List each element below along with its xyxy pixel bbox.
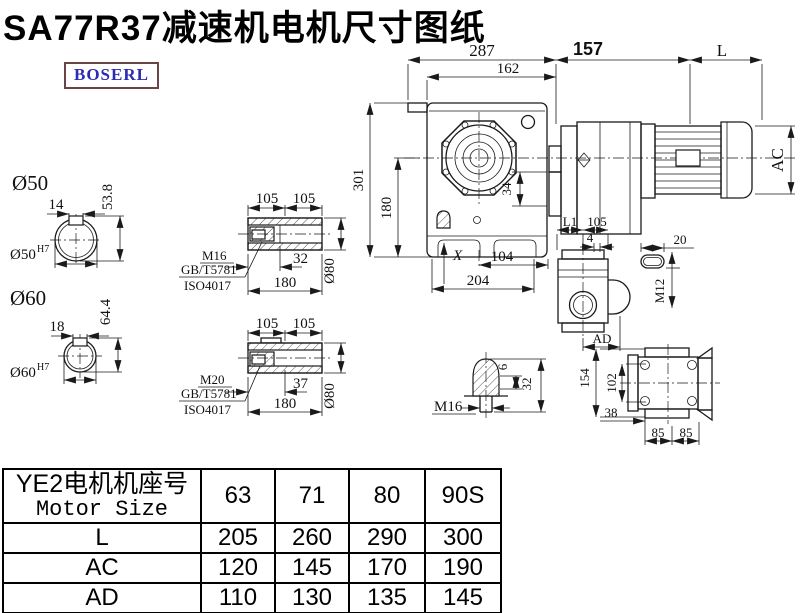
- dim-105a: 105: [256, 316, 279, 332]
- dim-14: 14: [49, 197, 65, 213]
- thread-label: M16: [202, 248, 227, 263]
- dim-157: 157: [573, 39, 603, 59]
- left-dimensions: 301 180: [351, 103, 432, 257]
- keyway-50: [69, 216, 83, 225]
- thread-label: M20: [200, 372, 225, 387]
- dim-X: X: [452, 248, 463, 264]
- dim-4: 4: [587, 230, 594, 245]
- cell: 205: [201, 523, 275, 553]
- motor-size-table: YE2电机机座号 Motor Size 63 71 80 90S L 205 2…: [2, 468, 502, 613]
- fan-cover: [721, 122, 752, 198]
- dim-32: 32: [293, 251, 308, 267]
- dim-6: 6: [495, 363, 510, 370]
- row-label-L: L: [3, 523, 201, 553]
- dim-105b: 105: [293, 316, 316, 332]
- cell: 190: [425, 553, 501, 583]
- bore-50-tolerance: H7: [37, 244, 49, 255]
- dim-38: 38: [605, 405, 618, 420]
- dim-L: L: [717, 41, 727, 60]
- thread-label: M16: [434, 399, 463, 415]
- col-63: 63: [201, 469, 275, 523]
- keyway-60: [73, 338, 87, 346]
- cell: 290: [349, 523, 425, 553]
- table-row: AC 120 145 170 190: [3, 553, 501, 583]
- bore-60-tolerance: H7: [37, 362, 49, 373]
- dim-180: 180: [274, 396, 297, 412]
- shaft-section-60: Ø60 18 64.4 Ø60 H7: [10, 286, 122, 384]
- dim-34: 34: [499, 182, 514, 196]
- standard-label-2: ISO4017: [184, 278, 231, 293]
- drawing-sheet: SA77R37减速机电机尺寸图纸 BOSERL: [0, 0, 800, 613]
- bore-50-label: Ø50: [10, 247, 36, 263]
- dim-105: 105: [587, 214, 607, 229]
- dim-d80: Ø80: [322, 383, 338, 409]
- dim-L1: L1: [563, 214, 577, 229]
- dim-102: 102: [604, 373, 619, 393]
- standard-label-1: GB/T5781: [181, 262, 237, 277]
- cell: 145: [275, 553, 349, 583]
- technical-drawing: 287 162 157 L 301 180 X: [0, 36, 800, 466]
- table-row: L 205 260 290 300: [3, 523, 501, 553]
- dim-180: 180: [274, 275, 297, 291]
- dim-AD: AD: [593, 331, 612, 346]
- row-label-AC: AC: [3, 553, 201, 583]
- table-header-row: YE2电机机座号 Motor Size 63 71 80 90S: [3, 469, 501, 523]
- header-en: Motor Size: [4, 498, 200, 521]
- key-detail: 20 M12: [641, 232, 694, 308]
- bushing-detail-bottom: 105 105 37 180 Ø80 M20 GB/T5781 ISO4017: [179, 316, 346, 417]
- cell: 300: [425, 523, 501, 553]
- dim-18: 18: [50, 319, 65, 335]
- cell: 145: [425, 583, 501, 613]
- lifting-eye-hole: [522, 116, 535, 129]
- dim-287: 287: [469, 41, 495, 60]
- dim-d80: Ø80: [322, 258, 338, 284]
- shaft60-label: Ø60: [10, 286, 46, 310]
- main-assembly-view: 287 162 157 L 301 180 X: [351, 39, 796, 293]
- cell: 260: [275, 523, 349, 553]
- col-90S: 90S: [425, 469, 501, 523]
- plug-detail: M16 6 32: [432, 352, 546, 418]
- gearbox-back-view: 154 102 38 85 85: [577, 344, 720, 445]
- dim-154: 154: [577, 368, 592, 388]
- dim-105a: 105: [256, 191, 279, 207]
- dim-301: 301: [351, 169, 367, 192]
- dim-180: 180: [379, 197, 395, 220]
- bushing-detail-top: 105 105 32 180 Ø80 M16 GB/T5781 ISO4017: [179, 191, 346, 295]
- dim-37: 37: [293, 376, 309, 392]
- cell: 120: [201, 553, 275, 583]
- col-80: 80: [349, 469, 425, 523]
- dim-85a: 85: [652, 425, 665, 440]
- thread-M12: M12: [652, 279, 667, 304]
- shaft-section-50: Ø50 14 53.8 Ø50 H7: [10, 171, 124, 268]
- dim-85b: 85: [680, 425, 693, 440]
- table-row: AD 110 130 135 145: [3, 583, 501, 613]
- header-motor-size: YE2电机机座号 Motor Size: [3, 469, 201, 523]
- motor-nameplate: [676, 150, 700, 166]
- cell: 170: [349, 553, 425, 583]
- header-cn: YE2电机机座号: [4, 471, 200, 497]
- cell: 130: [275, 583, 349, 613]
- bore-60-label: Ø60: [10, 365, 36, 381]
- dim-AC: AC: [768, 148, 787, 172]
- dim-104: 104: [491, 249, 514, 265]
- dim-20: 20: [674, 232, 687, 247]
- ac-dimension: AC: [755, 126, 795, 194]
- shaft50-label: Ø50: [12, 171, 48, 195]
- col-71: 71: [275, 469, 349, 523]
- oil-plug: [437, 211, 450, 228]
- standard-label-2: ISO4017: [184, 402, 231, 417]
- dim-162: 162: [497, 61, 520, 77]
- motor: [641, 122, 752, 198]
- dim-64-4: 64.4: [98, 298, 114, 325]
- dim-32: 32: [519, 378, 534, 391]
- dim-53-8: 53.8: [100, 184, 116, 210]
- row-label-AD: AD: [3, 583, 201, 613]
- standard-label-1: GB/T5781: [181, 386, 237, 401]
- dim-105b: 105: [293, 191, 316, 207]
- dim-204: 204: [467, 273, 490, 289]
- cell: 135: [349, 583, 425, 613]
- cell: 110: [201, 583, 275, 613]
